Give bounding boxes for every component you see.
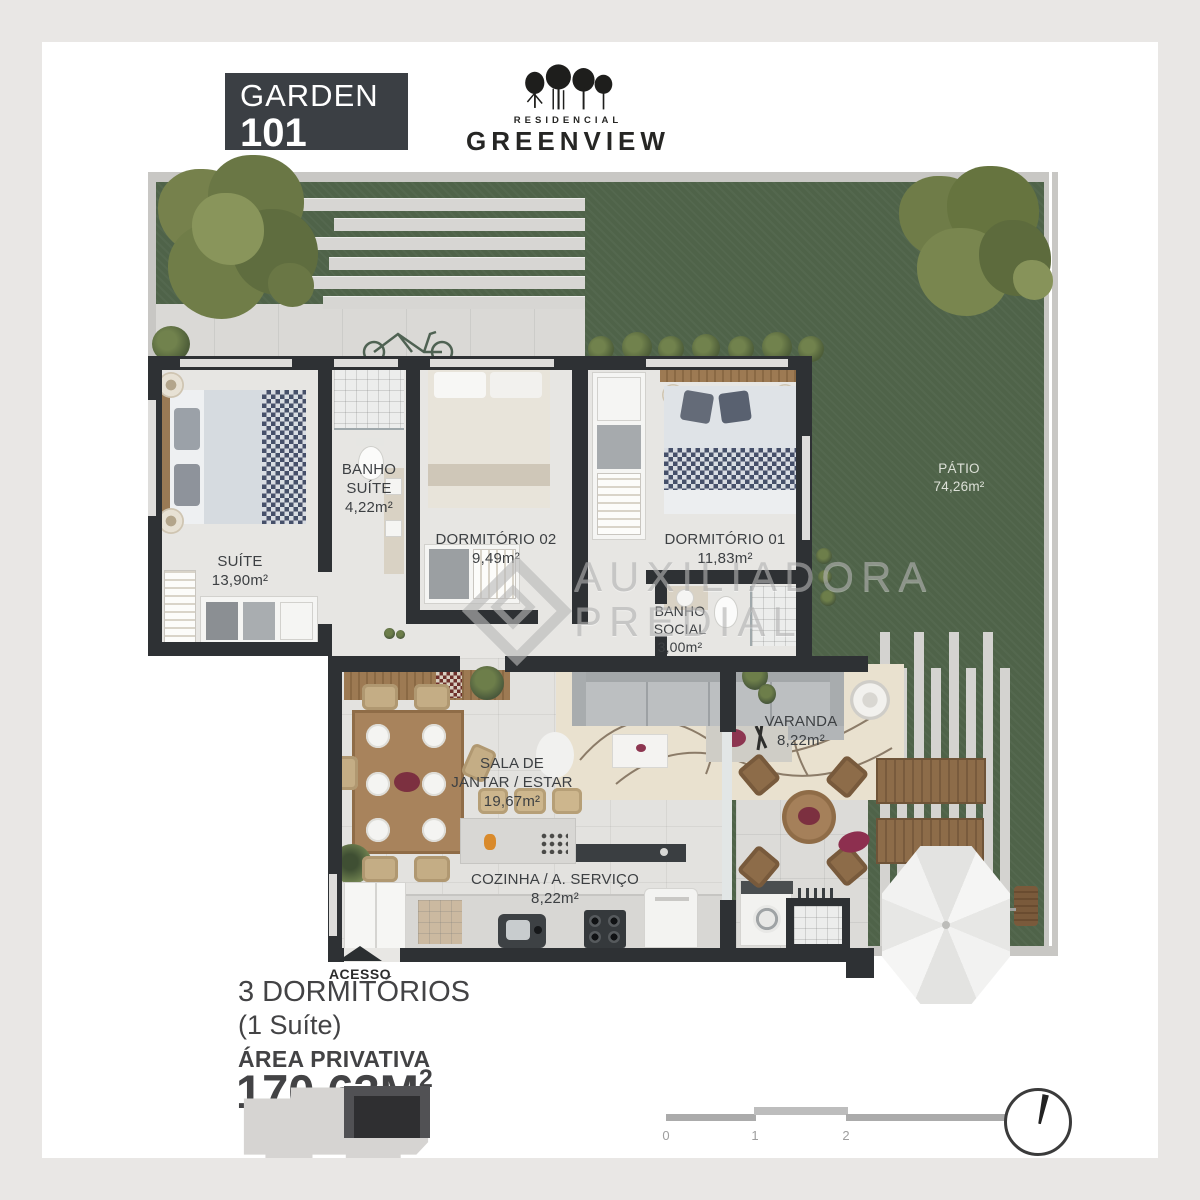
room-area: 8,22m²	[457, 889, 653, 908]
sink	[385, 520, 402, 537]
sliding-door	[722, 732, 732, 900]
trees-icon	[520, 62, 616, 114]
grill-counter	[794, 906, 842, 944]
dining-chair	[414, 856, 450, 882]
scale-tick: 2	[838, 1128, 854, 1143]
window-slot	[802, 436, 810, 540]
tree-top-left	[150, 155, 340, 340]
stepping-bar	[334, 218, 585, 231]
plant-pot	[470, 666, 504, 700]
room-label-varanda: VARANDA 8,22m²	[753, 712, 849, 750]
access-arrow-icon	[338, 946, 382, 961]
room-name: SUÍTE	[324, 479, 414, 498]
faucet	[660, 848, 668, 856]
wall-segment	[400, 948, 874, 962]
room-label-cozinha: COZINHA / A. SERVIÇO 8,22m²	[457, 870, 653, 908]
room-name: BANHO	[324, 460, 414, 479]
brand-logo: RESIDENCIAL GREENVIEW	[462, 62, 674, 157]
wall-segment	[328, 656, 460, 672]
dorm02-bed	[428, 368, 550, 508]
door-opening	[318, 572, 332, 624]
building-footprint-icon	[238, 1086, 434, 1164]
window-slot	[180, 359, 292, 367]
room-label-suite: SUÍTE 13,90m²	[180, 552, 300, 590]
room-area: 74,26m²	[899, 478, 1019, 496]
stepping-bar	[309, 237, 585, 250]
brand-name: GREENVIEW	[462, 126, 674, 157]
toilet	[356, 438, 384, 446]
island-dark-counter	[576, 844, 686, 862]
plate	[366, 818, 390, 842]
sun-lounger	[876, 758, 986, 804]
room-area: 4,22m²	[324, 498, 414, 517]
north-compass-icon	[1004, 1088, 1072, 1156]
window-slot	[646, 359, 788, 367]
plate	[422, 818, 446, 842]
dining-chair	[362, 684, 398, 710]
scale-bar-segment	[846, 1114, 1016, 1121]
kitchen-sink	[498, 914, 546, 948]
shower	[334, 368, 404, 430]
side-table-round	[850, 680, 890, 720]
decor-orange	[484, 834, 496, 850]
room-area: 19,67m²	[434, 792, 590, 811]
summary-suite-note: (1 Suíte)	[238, 1010, 342, 1041]
plate	[366, 772, 390, 796]
room-name: DORMITÓRIO 02	[428, 530, 564, 549]
counter-appliance	[418, 900, 462, 944]
summary-bedrooms: 3 DORMITÓRIOS	[238, 976, 470, 1009]
window-slot	[148, 400, 156, 516]
room-area: 8,22m²	[753, 731, 849, 750]
room-label-sala: SALA DE JANTAR / ESTAR 19,67m²	[434, 754, 590, 811]
unit-number: 101	[240, 114, 408, 152]
scale-tick: 0	[658, 1128, 674, 1143]
suite-bed	[170, 390, 306, 524]
watermark-line2: PREDIAL	[574, 599, 933, 644]
decor	[636, 744, 646, 752]
stove	[584, 910, 626, 948]
compass-needle	[1033, 1093, 1052, 1125]
window-slot	[430, 359, 554, 367]
dining-chair	[362, 856, 398, 882]
stepping-bar	[323, 296, 585, 309]
dorm01-wardrobe	[592, 372, 646, 540]
scale-bar-segment	[754, 1107, 848, 1115]
stepping-bar	[300, 198, 585, 211]
room-name: SALA DE	[434, 754, 590, 773]
room-area: 13,90m²	[180, 571, 300, 590]
scale-bar-segment	[666, 1114, 756, 1121]
suite-bed-headboard	[162, 390, 170, 524]
fridge	[344, 882, 406, 950]
umbrella	[882, 846, 1010, 1004]
room-name: DORMITÓRIO 01	[650, 530, 800, 549]
tree-top-right	[895, 166, 1053, 334]
room-name: JANTAR / ESTAR	[434, 773, 590, 792]
brand-residencial: RESIDENCIAL	[462, 115, 674, 126]
wall-segment	[846, 952, 874, 978]
floor-plan-page: GARDEN 101 RESIDENCIAL GREENVIEW	[0, 0, 1200, 1200]
room-name: VARANDA	[753, 712, 849, 731]
patio-side-table	[1014, 886, 1038, 926]
wall-segment	[148, 642, 332, 656]
watermark-text: AUXILIADORA PREDIAL	[574, 554, 933, 652]
footprint-unit	[354, 1096, 420, 1138]
stepping-bar	[329, 257, 586, 270]
plant	[396, 630, 405, 639]
plate	[422, 724, 446, 748]
room-name: SUÍTE	[180, 552, 300, 571]
scale-tick: 1	[747, 1128, 763, 1143]
dining-chair	[414, 684, 450, 710]
watermark-diamond-icon	[466, 554, 562, 652]
watermark-line1: AUXILIADORA	[574, 554, 933, 599]
room-label-banho-suite: BANHO SUÍTE 4,22m²	[324, 460, 414, 517]
plant	[384, 628, 395, 639]
varanda-table	[782, 790, 836, 844]
table-centerpiece	[394, 772, 420, 792]
wall-segment	[736, 656, 868, 672]
plate	[366, 724, 390, 748]
room-label-patio: PÁTIO 74,26m²	[899, 460, 1019, 496]
room-name: COZINHA / A. SERVIÇO	[457, 870, 653, 889]
washer	[740, 880, 792, 946]
wall-segment	[720, 900, 736, 962]
room-name: PÁTIO	[899, 460, 1019, 478]
wall-segment	[720, 656, 736, 732]
plant	[758, 684, 776, 704]
dorm01-bed	[664, 386, 798, 514]
window-slot	[334, 359, 398, 367]
decor-grapes	[540, 832, 568, 854]
wall-segment	[505, 656, 722, 672]
unit-type: GARDEN	[240, 78, 408, 114]
door-slot	[329, 874, 337, 936]
stepping-path	[300, 198, 585, 309]
suite-wardrobe	[200, 596, 318, 646]
unit-badge: GARDEN 101	[225, 73, 408, 150]
watermark: AUXILIADORA PREDIAL	[466, 554, 933, 652]
stepping-bar	[300, 276, 585, 289]
